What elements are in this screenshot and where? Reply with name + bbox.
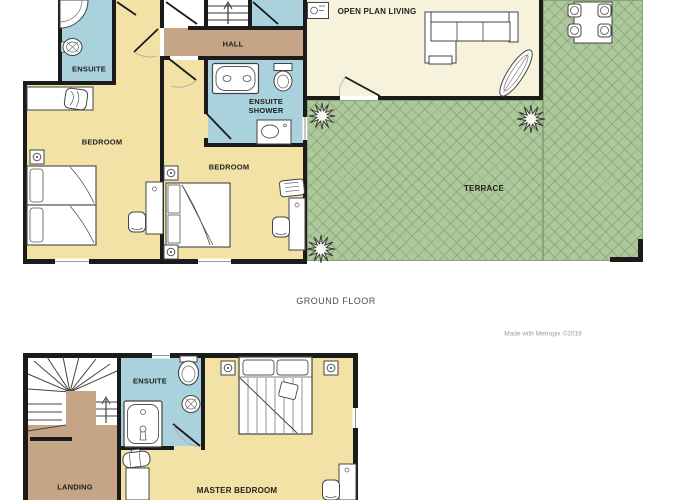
room-partial-bathroom-top — [252, 0, 303, 26]
wall — [378, 96, 543, 100]
wall — [204, 0, 208, 28]
wall — [204, 143, 307, 147]
room-stairs-ground — [208, 0, 248, 26]
wall — [160, 56, 170, 60]
room-terrace-main — [307, 100, 543, 261]
floor-caption-ground: GROUND FLOOR — [296, 296, 376, 306]
wall — [353, 428, 358, 500]
room-label-landing: LANDING — [57, 483, 93, 492]
wall — [539, 0, 543, 100]
floorplan-canvas: ENSUITE HALL OPEN PLAN LIVING ENSUITE SH… — [0, 0, 700, 500]
wall — [117, 446, 174, 450]
room-bedroom-left — [25, 83, 160, 263]
room-label-bedroom-middle: BEDROOM — [209, 163, 250, 172]
room-label-terrace: TERRACE — [464, 184, 504, 194]
wall — [30, 437, 72, 441]
wall — [117, 353, 121, 500]
room-stair-landing-gap — [164, 0, 204, 26]
wall — [58, 0, 62, 83]
wall — [198, 56, 307, 60]
wall — [23, 353, 28, 500]
wall — [231, 259, 307, 264]
wall — [201, 353, 205, 450]
room-ensuite-first — [121, 358, 201, 446]
room-label-ensuite-ground: ENSUITE — [72, 65, 106, 74]
room-stairs-first — [28, 357, 117, 425]
wall — [303, 140, 307, 264]
room-label-hall: HALL — [223, 40, 244, 49]
room-label-ensuite-first: ENSUITE — [133, 377, 167, 386]
wall — [89, 259, 198, 264]
wall — [23, 81, 27, 264]
wall — [23, 81, 116, 85]
wall — [23, 259, 57, 264]
room-label-bedroom-left: BEDROOM — [82, 138, 123, 147]
wall — [160, 0, 164, 28]
wall — [188, 26, 307, 30]
room-label-open-plan-living: OPEN PLAN LIVING — [338, 7, 417, 17]
wall — [353, 353, 358, 408]
wall — [170, 353, 358, 358]
room-label-ensuite-shower: ENSUITE SHOWER — [235, 97, 297, 115]
room-terrace-east — [543, 0, 643, 261]
room-bedroom-left-upper — [115, 0, 160, 83]
wall — [204, 60, 208, 114]
wall — [305, 96, 340, 100]
wall — [112, 0, 116, 85]
wall — [23, 353, 152, 358]
wall — [160, 57, 164, 264]
wall — [638, 239, 643, 262]
room-label-master-bedroom: MASTER BEDROOM — [197, 486, 278, 496]
wall — [248, 0, 252, 28]
credit-text: Made with Metropix ©2019 — [504, 331, 581, 338]
